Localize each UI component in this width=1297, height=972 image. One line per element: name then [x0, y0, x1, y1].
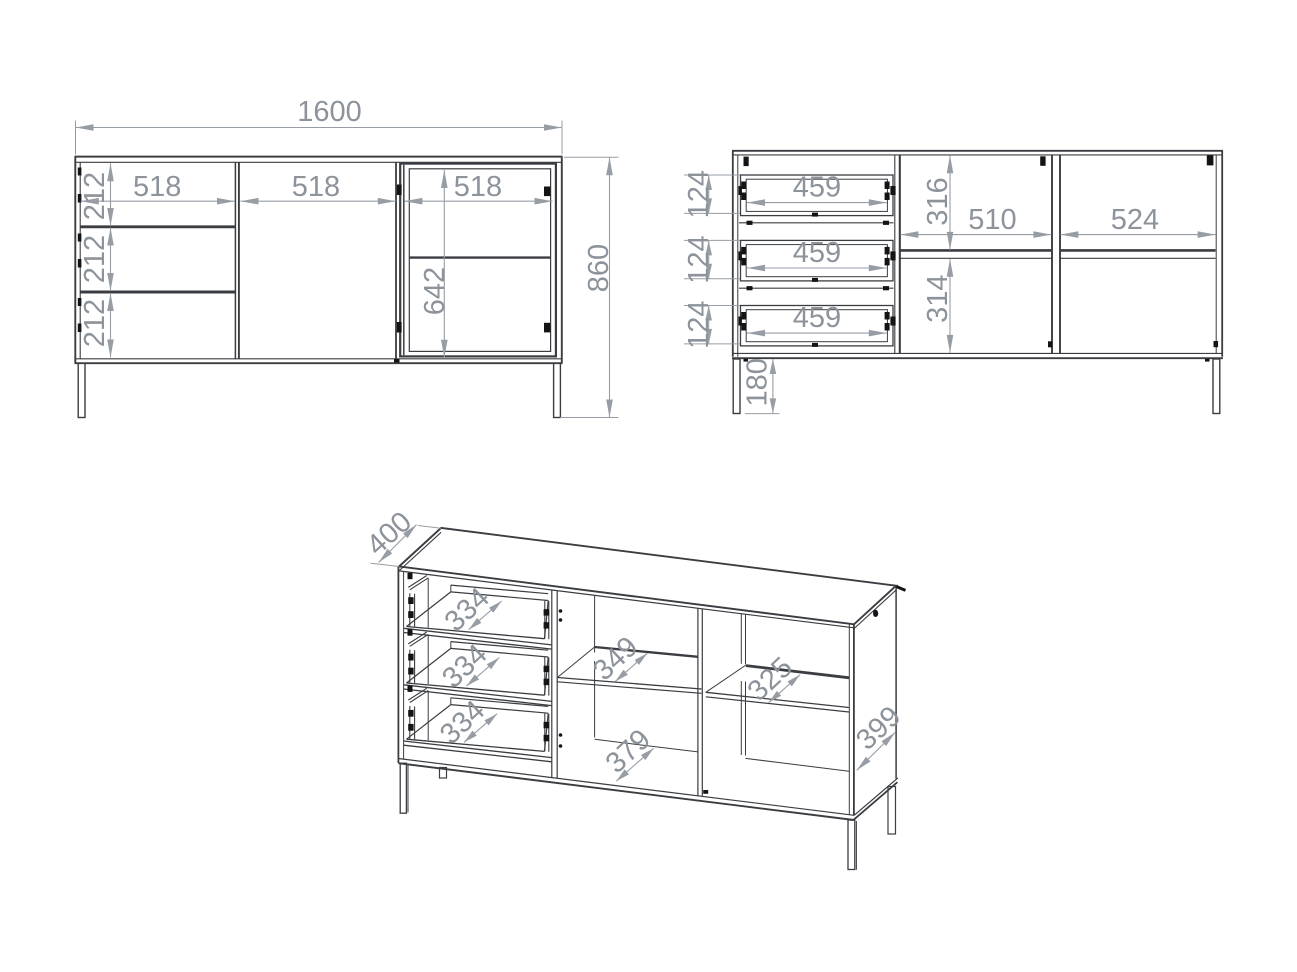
svg-text:124: 124: [683, 235, 715, 283]
svg-text:1600: 1600: [297, 96, 362, 128]
svg-text:325: 325: [742, 651, 799, 707]
svg-text:459: 459: [793, 302, 841, 334]
svg-text:524: 524: [1111, 204, 1159, 236]
svg-text:518: 518: [292, 171, 340, 203]
svg-text:518: 518: [454, 171, 502, 203]
svg-text:642: 642: [419, 267, 451, 315]
svg-text:124: 124: [683, 170, 715, 218]
svg-text:212: 212: [79, 299, 111, 347]
svg-text:459: 459: [793, 237, 841, 269]
svg-text:510: 510: [968, 204, 1016, 236]
svg-text:399: 399: [850, 700, 907, 756]
svg-text:316: 316: [922, 177, 954, 225]
svg-text:212: 212: [79, 172, 111, 220]
svg-text:860: 860: [583, 244, 615, 292]
svg-text:212: 212: [79, 235, 111, 283]
svg-text:379: 379: [600, 723, 657, 779]
svg-text:124: 124: [683, 301, 715, 349]
svg-text:180: 180: [742, 358, 774, 406]
svg-text:459: 459: [793, 172, 841, 204]
svg-text:400: 400: [361, 506, 418, 562]
svg-text:518: 518: [133, 171, 181, 203]
svg-text:314: 314: [922, 275, 954, 323]
svg-text:349: 349: [587, 631, 644, 687]
